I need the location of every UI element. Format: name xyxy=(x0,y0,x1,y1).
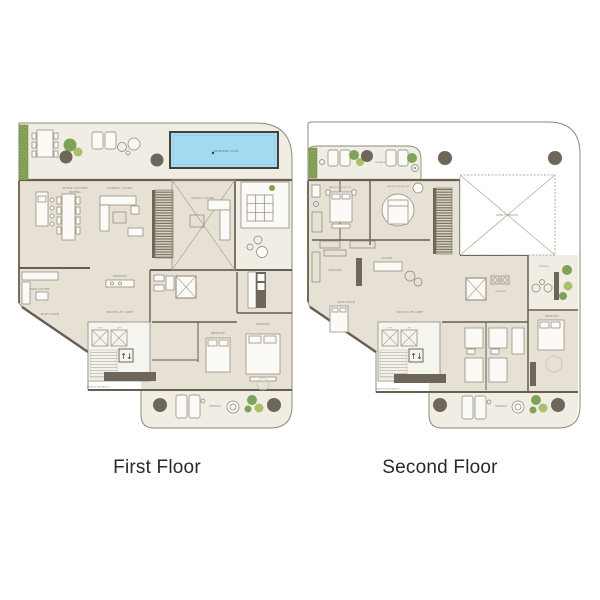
plant-icon xyxy=(539,404,548,413)
plant-icon xyxy=(255,404,264,413)
pool-bar-room xyxy=(241,182,289,228)
column-icon xyxy=(153,398,167,412)
column-icon xyxy=(551,398,565,412)
column-icon xyxy=(60,151,73,164)
dining-table xyxy=(57,194,80,240)
louver-screen xyxy=(152,190,173,258)
plant-icon xyxy=(562,265,572,275)
svg-text:OPEN TO BELOW: OPEN TO BELOW xyxy=(496,214,519,217)
column-icon xyxy=(433,398,447,412)
plant-icon xyxy=(564,282,573,291)
lift-core: LIFT LIFT ↑↓ xyxy=(378,322,446,383)
svg-text:PRIVATE LIFT LOBBY: PRIVATE LIFT LOBBY xyxy=(107,311,134,314)
svg-text:LIFT: LIFT xyxy=(388,328,393,330)
column-icon xyxy=(548,151,562,165)
svg-text:LIFT: LIFT xyxy=(407,328,412,330)
first-floor-title: First Floor xyxy=(57,457,257,479)
svg-text:MAID'S ROOM: MAID'S ROOM xyxy=(41,313,59,316)
column-icon xyxy=(361,150,373,162)
plant-icon xyxy=(247,395,257,405)
svg-text:↑↓: ↑↓ xyxy=(120,352,132,361)
svg-text:LOUNGE: LOUNGE xyxy=(382,257,393,260)
column-icon xyxy=(438,151,452,165)
bedroom-mid xyxy=(206,338,230,372)
wardrobe-room xyxy=(248,272,266,308)
second-floor-plan: TERRACE OPEN TO BELOW xyxy=(290,100,590,440)
svg-text:LIFT: LIFT xyxy=(98,328,103,330)
louver-screen xyxy=(433,188,452,254)
swimming-pool: SWIMMING POOL xyxy=(170,132,278,168)
entrance-console xyxy=(106,280,134,287)
svg-text:ENTRANCE: ENTRANCE xyxy=(113,275,127,278)
svg-text:FORMAL LIVING: FORMAL LIVING xyxy=(107,186,133,190)
svg-text:SWIMMING POOL: SWIMMING POOL xyxy=(213,149,239,153)
svg-text:TERRACE: TERRACE xyxy=(495,405,507,408)
svg-text:DRESSING: DRESSING xyxy=(328,269,342,272)
planter-icon xyxy=(309,148,317,178)
first-floor-plan: SWIMMING POOL xyxy=(0,100,300,440)
plant-icon xyxy=(531,395,541,405)
plant-icon xyxy=(245,406,252,413)
svg-text:↑↓: ↑↓ xyxy=(410,352,422,361)
svg-text:DINING: DINING xyxy=(69,190,81,194)
svg-text:LIFT: LIFT xyxy=(117,328,122,330)
svg-text:PRIVATE LIFT LOBBY: PRIVATE LIFT LOBBY xyxy=(397,311,424,314)
planter-icon xyxy=(19,125,28,180)
tree-icon xyxy=(74,148,83,157)
svg-text:TERRACE: TERRACE xyxy=(539,265,550,268)
svg-text:BEDROOM: BEDROOM xyxy=(211,332,225,335)
svg-text:FAMILY LIVING: FAMILY LIVING xyxy=(191,196,215,200)
leaf-icon xyxy=(269,185,275,191)
svg-text:MAIN KITCHEN: MAIN KITCHEN xyxy=(30,288,49,291)
guest-room xyxy=(330,306,348,332)
column-icon xyxy=(151,154,164,167)
svg-text:BEDROOM: BEDROOM xyxy=(545,315,559,318)
plant-icon xyxy=(530,407,537,414)
column-icon xyxy=(267,398,281,412)
svg-text:GUEST ROOM: GUEST ROOM xyxy=(337,301,355,304)
tree-icon xyxy=(349,150,359,160)
open-to-below: OPEN TO BELOW xyxy=(460,175,555,255)
tree-icon xyxy=(407,153,417,163)
stairs xyxy=(380,350,407,378)
second-floor-title: Second Floor xyxy=(340,457,540,479)
svg-text:TERRACE: TERRACE xyxy=(209,405,221,408)
lift-core: LIFT LIFT ↑↓ xyxy=(88,322,156,381)
svg-text:SERVICE ENTRANCE: SERVICE ENTRANCE xyxy=(376,388,400,391)
svg-text:TERRACE: TERRACE xyxy=(375,161,386,164)
svg-text:LAUNDRY: LAUNDRY xyxy=(496,290,508,293)
svg-text:BEDROOM: BEDROOM xyxy=(256,323,270,326)
svg-text:MASTER BEDROOM: MASTER BEDROOM xyxy=(329,186,351,189)
svg-text:SERVICE ENTRANCE: SERVICE ENTRANCE xyxy=(86,386,110,389)
plant-icon xyxy=(559,292,567,300)
svg-text:MASTER BEDROOM: MASTER BEDROOM xyxy=(387,185,409,188)
